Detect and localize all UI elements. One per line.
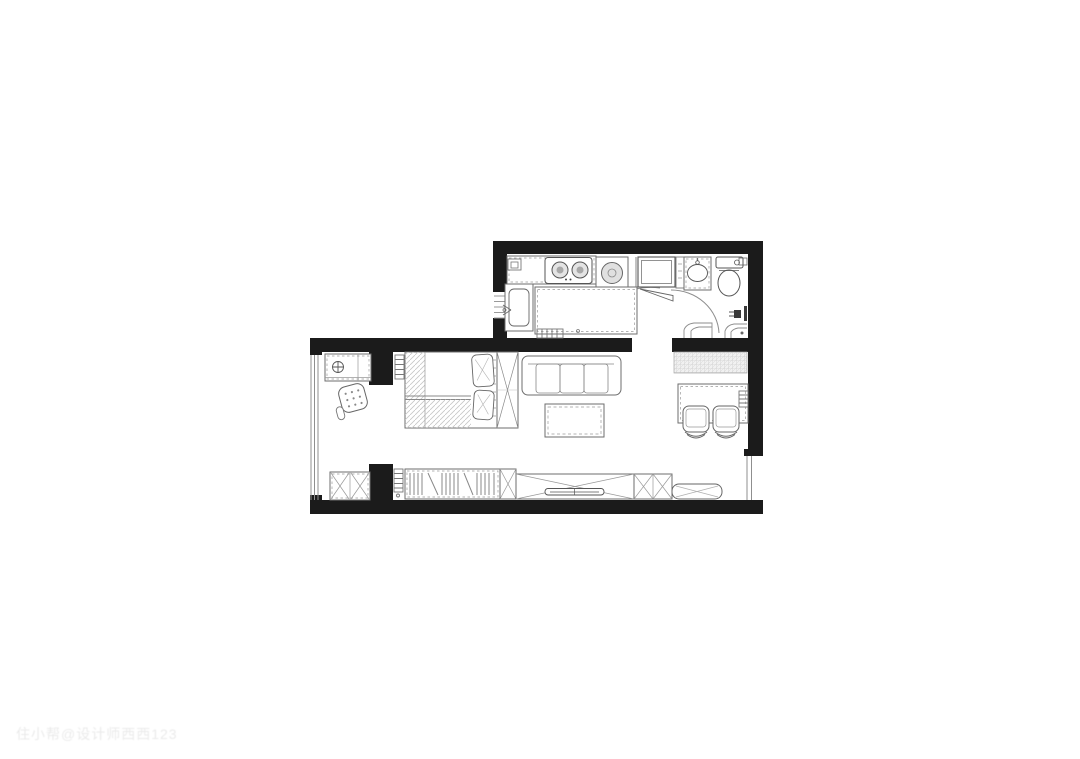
floor-plan-canvas: 住小帮@设计师西西123 [0, 0, 1080, 759]
wall-middle-right [672, 338, 748, 352]
kitchen [503, 256, 684, 338]
floor-drain-bath [741, 332, 744, 335]
refrigerator [638, 257, 675, 301]
bedroom [405, 352, 518, 428]
wardrobe [497, 352, 518, 428]
coffee-table [545, 404, 604, 437]
wall-right-cap [744, 449, 763, 456]
floor-drain-entry [333, 362, 344, 373]
kitchen-island [535, 287, 637, 334]
dining-chair [713, 406, 739, 438]
dining-chair [683, 406, 709, 438]
window-right [747, 456, 752, 500]
shower-mixer [729, 306, 747, 321]
wall-middle-left [318, 338, 632, 352]
double-bed [405, 352, 497, 428]
watermark: 住小帮@设计师西西123 [16, 724, 178, 744]
radiator-entry-lower [394, 469, 403, 497]
partition-panel [676, 257, 684, 288]
dining-nook [674, 352, 748, 438]
washing-machine [596, 257, 628, 288]
pillow [471, 354, 494, 387]
closet-hanging-rail [405, 469, 500, 499]
shoe-cabinet [330, 472, 370, 500]
storage-cabinets [634, 474, 672, 499]
wall-top [493, 241, 763, 254]
pillow [473, 390, 495, 420]
tv-cabinet [516, 474, 634, 499]
bathroom-step [725, 324, 747, 338]
storage-box [500, 469, 516, 499]
bathroom-vanity [684, 257, 711, 290]
blanket-strip [405, 352, 425, 428]
television [545, 489, 604, 496]
wall-bottom [310, 500, 763, 514]
living-room [522, 356, 621, 437]
kitchen-sink [503, 284, 533, 331]
textured-sideboard [674, 352, 747, 373]
ottoman [331, 382, 370, 420]
radiator-entry-upper [395, 355, 404, 379]
cooktop-2-burner [545, 258, 592, 284]
wall-stub-lower [369, 464, 393, 502]
bench [672, 484, 722, 499]
storage-band [405, 469, 722, 499]
entry-step [684, 323, 712, 338]
entry-cabinet [325, 354, 371, 381]
thresholds [684, 323, 747, 338]
wall-stub-upper [369, 352, 393, 385]
wall-left-top-corner [310, 338, 322, 355]
floor-plan-drawing [0, 0, 1080, 759]
sofa-3-seat [522, 356, 621, 395]
blanket [425, 400, 471, 429]
wall-right [748, 241, 763, 456]
window-left [311, 355, 318, 500]
fridge-door-open [640, 289, 673, 301]
